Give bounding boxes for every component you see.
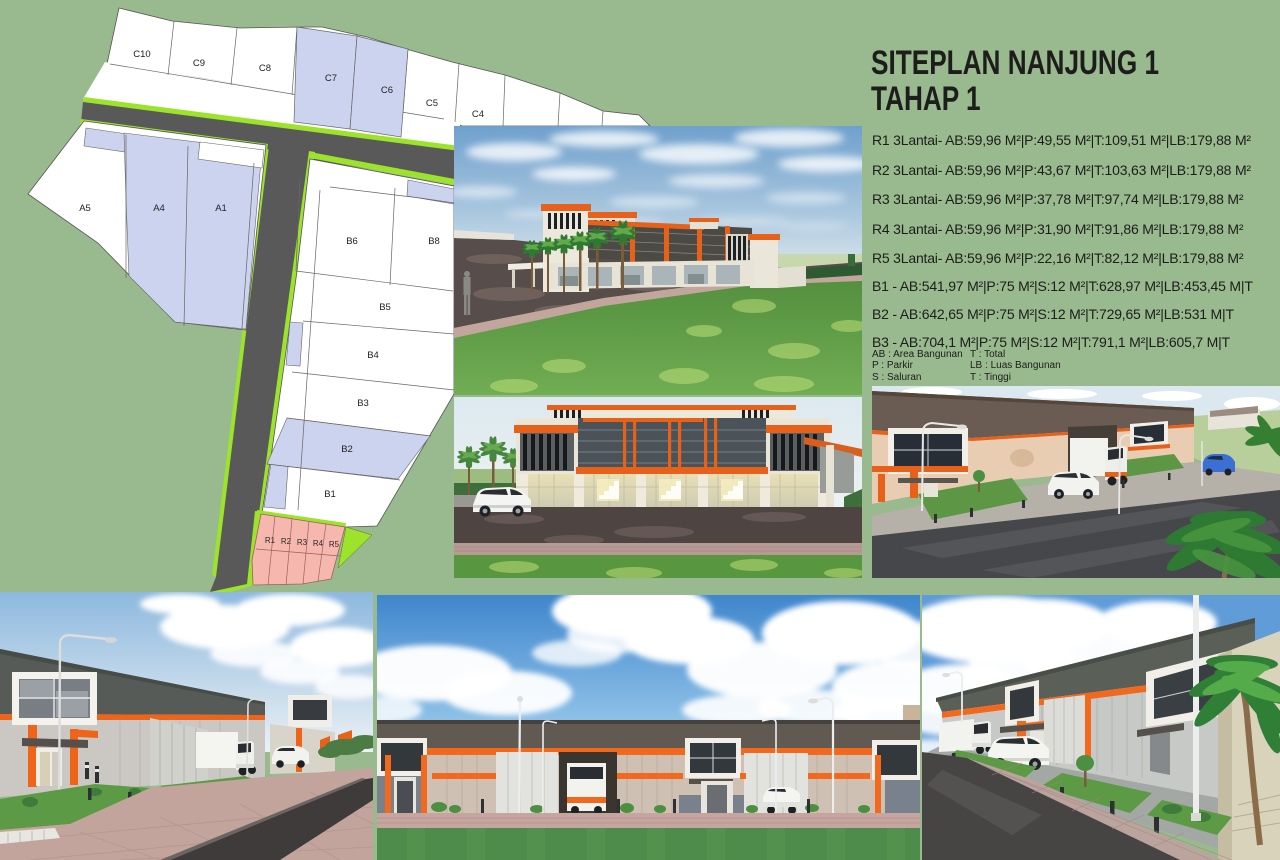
svg-text:B2: B2 <box>341 444 353 455</box>
svg-text:B3: B3 <box>357 398 369 409</box>
svg-text:B5: B5 <box>379 302 391 313</box>
svg-text:B8: B8 <box>428 236 440 247</box>
svg-text:B6: B6 <box>346 236 358 247</box>
svg-text:R4: R4 <box>313 539 324 548</box>
svg-text:A4: A4 <box>153 203 165 214</box>
svg-text:R2: R2 <box>281 537 292 546</box>
svg-text:B4: B4 <box>367 350 379 361</box>
svg-text:C9: C9 <box>193 58 205 69</box>
svg-text:C10: C10 <box>133 49 150 60</box>
svg-text:C5: C5 <box>426 98 438 109</box>
svg-text:R3: R3 <box>297 538 308 547</box>
svg-text:A5: A5 <box>79 203 91 214</box>
svg-text:R5: R5 <box>329 540 340 549</box>
svg-text:A1: A1 <box>215 203 227 214</box>
svg-text:C6: C6 <box>381 85 393 96</box>
svg-text:B1: B1 <box>324 489 336 500</box>
svg-text:C4: C4 <box>472 109 484 120</box>
svg-text:R1: R1 <box>265 536 276 545</box>
svg-text:C8: C8 <box>259 63 271 74</box>
svg-text:C7: C7 <box>325 73 337 84</box>
